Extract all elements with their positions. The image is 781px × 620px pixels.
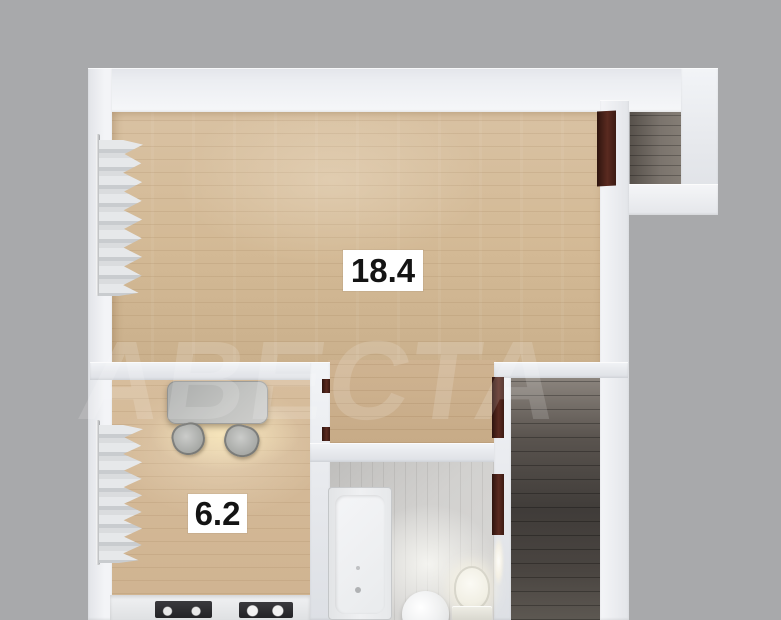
wall-bathroom-top (310, 443, 511, 462)
toilet-bowl (454, 566, 490, 610)
corridor-floor (511, 376, 600, 620)
kitchen-sink (239, 602, 293, 618)
bathtub (328, 487, 392, 620)
toilet-tank (452, 606, 492, 620)
wall-corridor-top (494, 362, 628, 378)
open-door-living-to-niche (597, 111, 616, 187)
passage-floor (328, 360, 496, 443)
wall-light (493, 535, 504, 587)
area-label-kitchen: 6.2 (188, 494, 247, 533)
door-jamb-kitchen-upper (322, 379, 330, 393)
door-frame-passage-to-corridor (492, 377, 504, 438)
area-label-living-room: 18.4 (343, 250, 423, 291)
entry-niche-floor (630, 110, 681, 186)
door-frame-bathroom-to-corridor (492, 474, 504, 535)
living-room-floor (110, 108, 602, 368)
door-jamb-kitchen-lower (322, 427, 330, 441)
stove (155, 601, 212, 618)
floor-plan-canvas: АВЕСТА 18.4 6.2 (0, 0, 781, 620)
wall-kitchen-bathroom-divider (310, 362, 330, 620)
wall-living-kitchen (90, 362, 330, 380)
dining-table (167, 381, 268, 424)
